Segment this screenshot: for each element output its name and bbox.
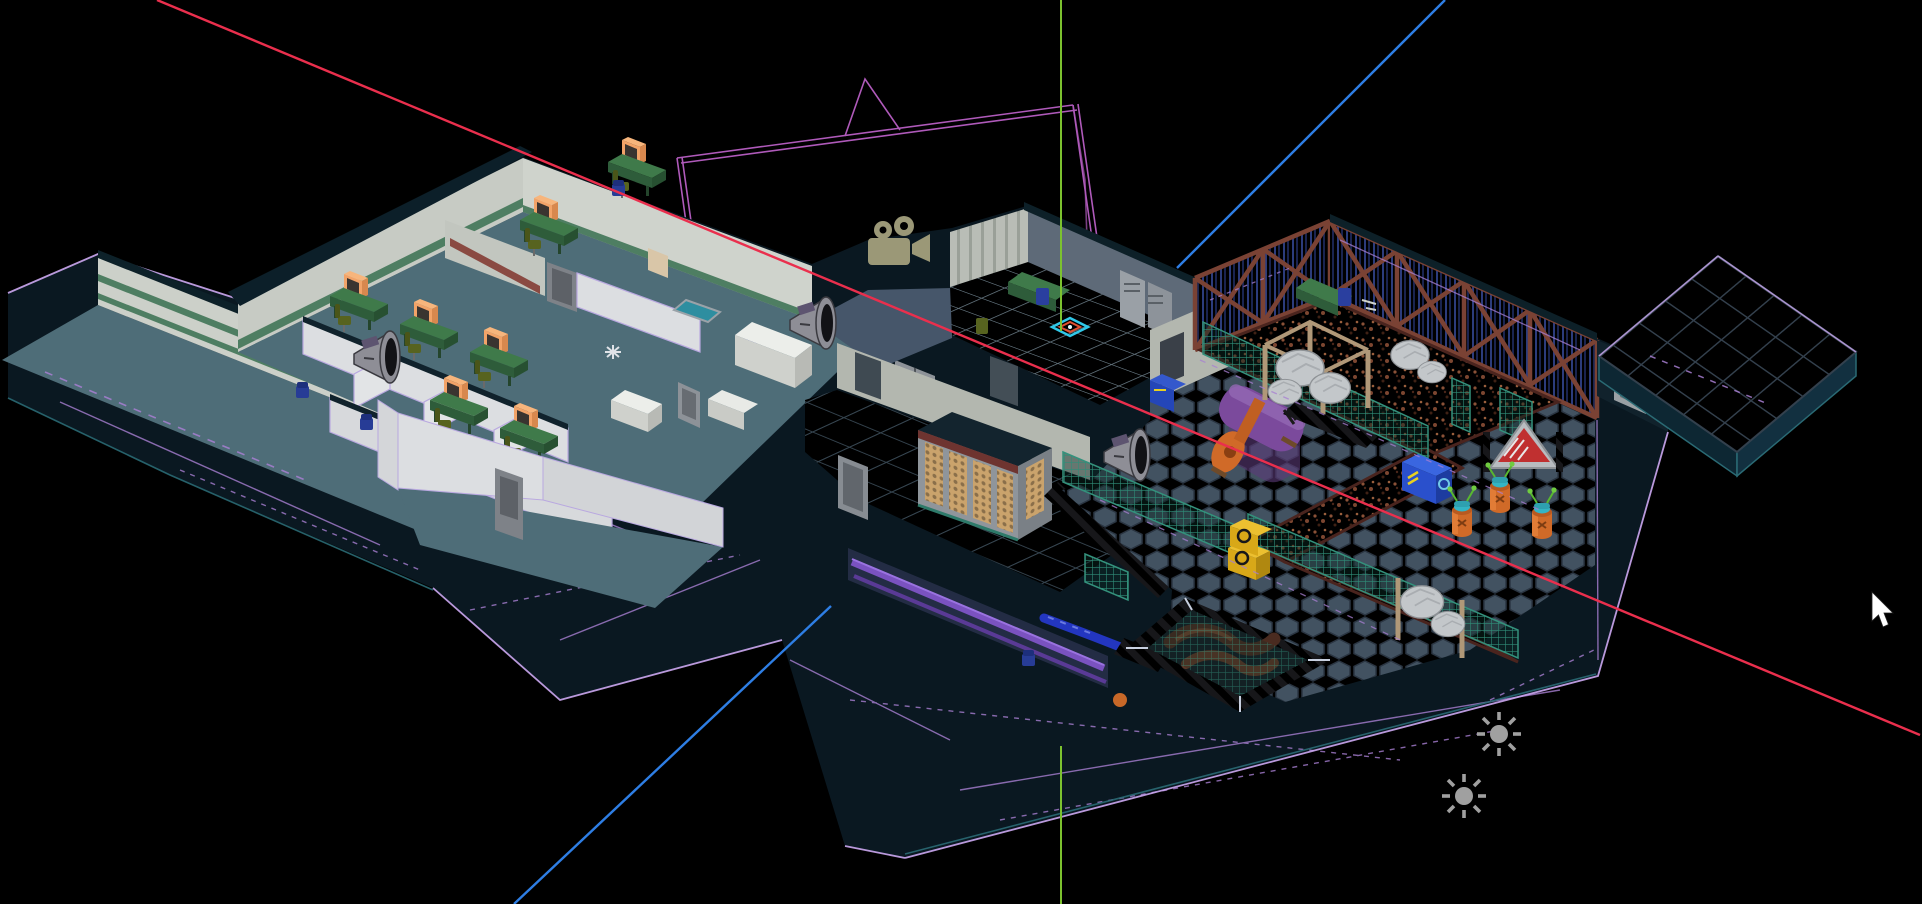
storage-bin[interactable] [360,414,373,430]
env-gizmo[interactable] [605,345,621,359]
annex-wall-west[interactable] [378,400,398,490]
blue-chair[interactable] [1036,288,1049,305]
3d-viewport[interactable] [0,0,1922,904]
office-chair[interactable] [976,318,988,334]
yellow-crate-stack[interactable] [1228,519,1272,580]
light-icon[interactable] [1477,712,1521,756]
orange-valve [1113,693,1127,707]
storage-bin[interactable] [296,382,309,398]
storage-bin[interactable] [1022,650,1035,666]
blue-chair[interactable] [1338,288,1351,306]
annex-door[interactable] [495,468,523,540]
light-icon[interactable] [1442,774,1486,818]
